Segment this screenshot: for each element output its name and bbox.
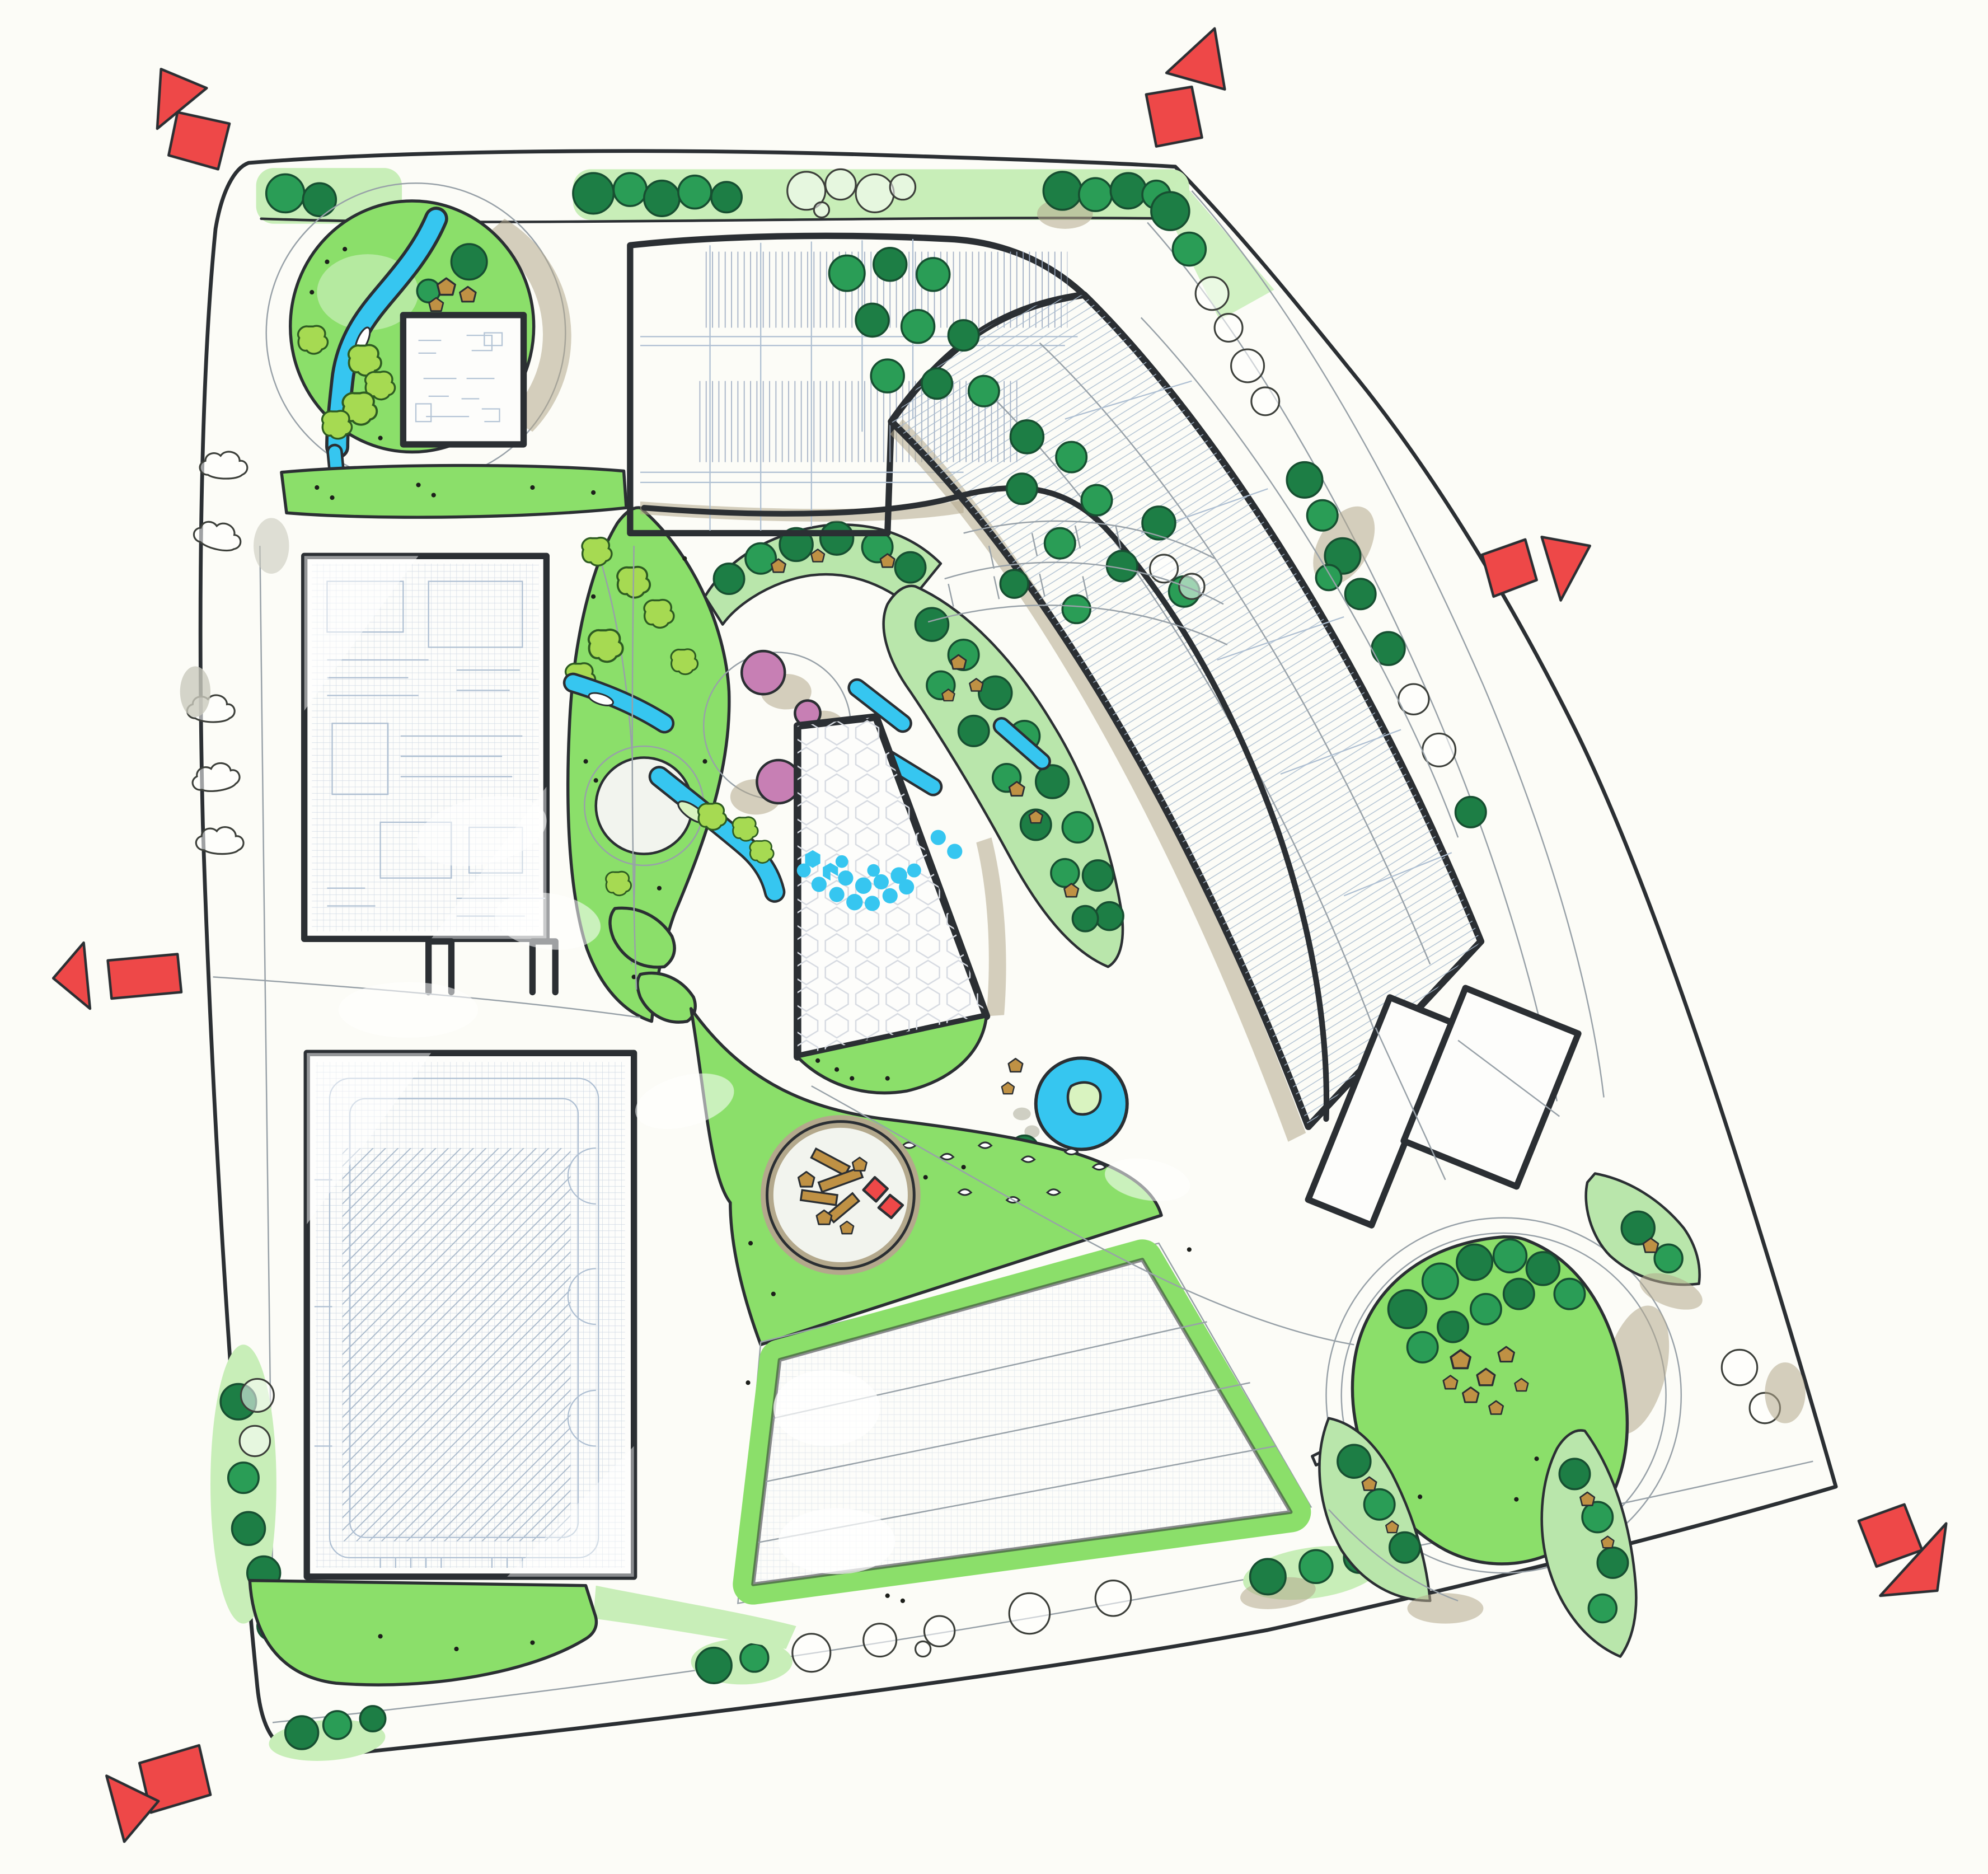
building-southwest xyxy=(307,1053,634,1577)
pond-island xyxy=(1068,1083,1100,1114)
blossom-tree xyxy=(757,760,800,803)
blossom-tree xyxy=(742,651,785,694)
building-northwest xyxy=(403,315,523,444)
tree xyxy=(451,244,486,279)
lawn-strip-west xyxy=(282,466,626,518)
site-plan-drawing xyxy=(0,0,1988,1874)
playground xyxy=(767,1122,915,1269)
